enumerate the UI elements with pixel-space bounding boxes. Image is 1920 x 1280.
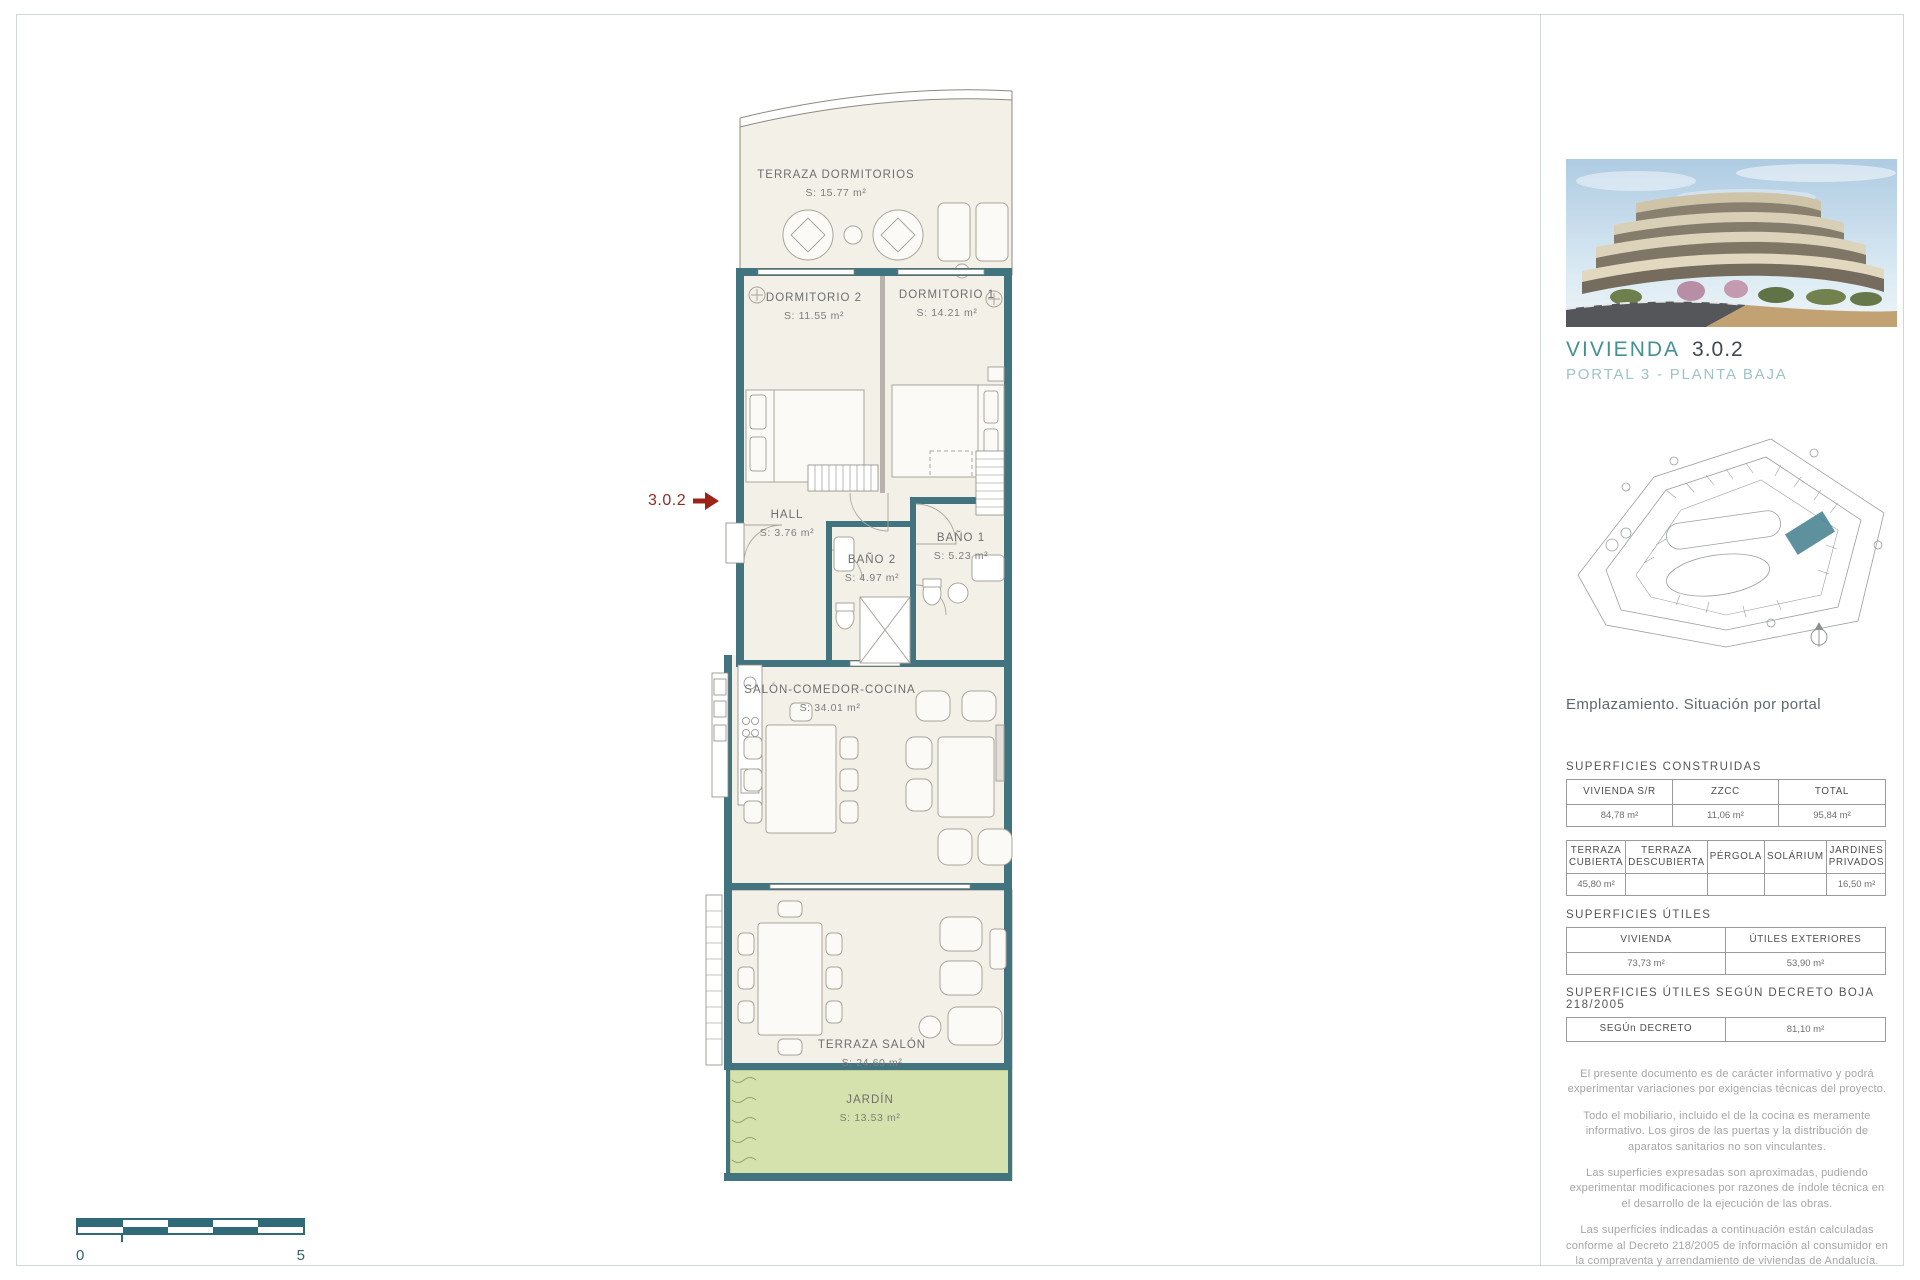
table-decreto: SEGÚn DECRETO 81,10 m² xyxy=(1566,1017,1886,1042)
pergola-strip xyxy=(706,895,722,1065)
col-value: 45,80 m² xyxy=(1567,874,1626,895)
floor-plan: TERRAZA DORMITORIOSS: 15.77 m² DORMITORI… xyxy=(700,85,1030,1195)
info-sidebar: VIVIENDA3.0.2 PORTAL 3 - PLANTA BAJA xyxy=(1540,14,1905,1266)
col-header: SOLÁRIUM xyxy=(1765,841,1827,874)
col-value: 84,78 m² xyxy=(1567,805,1673,826)
bedroom-partition-wall xyxy=(880,276,885,493)
room-label-hall: HALLS: 3.76 m² xyxy=(760,509,814,539)
col-header: VIVIENDA S/R xyxy=(1567,780,1673,805)
col-header: TERRAZA DESCUBIERTA xyxy=(1626,841,1707,874)
site-plan xyxy=(1566,425,1897,660)
legal-note: Todo el mobiliario, incluido el de la co… xyxy=(1566,1109,1888,1155)
room-label-salon: SALÓN-COMEDOR-COCINAS: 34.01 m² xyxy=(744,684,915,714)
col-header: SEGÚn DECRETO xyxy=(1567,1018,1726,1041)
heading-decreto: SUPERFICIES ÚTILES SEGÚN DECRETO BOJA 21… xyxy=(1566,987,1905,1011)
col-header: TERRAZA CUBIERTA xyxy=(1567,841,1626,874)
table-utiles: VIVIENDA ÚTILES EXTERIORES 73,73 m² 53,9… xyxy=(1566,927,1886,975)
room-label-jardin: JARDÍNS: 13.53 m² xyxy=(840,1094,901,1124)
room-label-banyo-2: BAÑO 2S: 4.97 m² xyxy=(845,554,899,584)
legal-note: Las superficies indicadas a continuación… xyxy=(1566,1223,1888,1269)
unit-title: VIVIENDA3.0.2 xyxy=(1566,338,1905,362)
col-value xyxy=(1765,874,1827,895)
col-value: 53,90 m² xyxy=(1726,953,1885,974)
col-value xyxy=(1626,874,1707,895)
legal-notes: El presente documento es de carácter inf… xyxy=(1566,1067,1888,1269)
unit-pointer-label: 3.0.2 xyxy=(648,492,686,510)
col-header: ÚTILES EXTERIORES xyxy=(1726,928,1885,953)
building-photo xyxy=(1566,159,1897,327)
col-header: JARDINES PRIVADOS xyxy=(1827,841,1887,874)
col-header: PÉRGOLA xyxy=(1708,841,1765,874)
heading-superficies-utiles: SUPERFICIES ÚTILES xyxy=(1566,909,1905,921)
col-value: 73,73 m² xyxy=(1567,953,1726,974)
col-header: ZZCC xyxy=(1673,780,1779,805)
scale-end-label: 5 xyxy=(297,1247,305,1264)
col-header: VIVIENDA xyxy=(1567,928,1726,953)
table-construidas-1: VIVIENDA S/R ZZCC TOTAL 84,78 m² 11,06 m… xyxy=(1566,779,1886,827)
unit-title-block: VIVIENDA3.0.2 PORTAL 3 - PLANTA BAJA xyxy=(1566,338,1905,383)
siteplan-caption: Emplazamiento. Situación por portal xyxy=(1566,696,1905,713)
legal-note: Las superficies expresadas son aproximad… xyxy=(1566,1166,1888,1212)
room-label-terraza-salon: TERRAZA SALÓNS: 24.60 m² xyxy=(818,1039,926,1069)
room-label-terraza-dormitorios: TERRAZA DORMITORIOSS: 15.77 m² xyxy=(757,169,914,199)
highlighted-unit xyxy=(1785,511,1835,555)
col-value: 16,50 m² xyxy=(1827,874,1887,895)
garden-floor xyxy=(730,1070,1012,1180)
scale-bar-graphic xyxy=(76,1218,305,1235)
scale-bar: 0 5 xyxy=(76,1218,305,1264)
col-value xyxy=(1708,874,1765,895)
wardrobe-striped xyxy=(808,465,878,491)
legal-note: El presente documento es de carácter inf… xyxy=(1566,1067,1888,1098)
building-photo-illustration xyxy=(1566,159,1897,327)
table-construidas-2: TERRAZA CUBIERTA TERRAZA DESCUBIERTA PÉR… xyxy=(1566,840,1886,896)
shower-banyo1 xyxy=(976,451,1004,515)
unit-pointer-arrow-icon xyxy=(693,492,719,510)
north-arrow-icon xyxy=(1811,623,1827,647)
heading-superficies-construidas: SUPERFICIES CONSTRUIDAS xyxy=(1566,761,1905,773)
col-value: 11,06 m² xyxy=(1673,805,1779,826)
room-label-dormitorio-1: DORMITORIO 1S: 14.21 m² xyxy=(899,289,995,319)
col-header: TOTAL xyxy=(1779,780,1885,805)
room-label-dormitorio-2: DORMITORIO 2S: 11.55 m² xyxy=(766,292,862,322)
col-value: 95,84 m² xyxy=(1779,805,1885,826)
scale-start-label: 0 xyxy=(76,1247,84,1264)
room-label-banyo-1: BAÑO 1S: 5.23 m² xyxy=(934,532,988,562)
unit-number: 3.0.2 xyxy=(1692,338,1744,361)
unit-pointer: 3.0.2 xyxy=(648,492,719,510)
floor-plan-drawing xyxy=(700,85,1030,1195)
site-plan-drawing xyxy=(1566,425,1897,660)
unit-subtitle: PORTAL 3 - PLANTA BAJA xyxy=(1566,366,1905,383)
col-value: 81,10 m² xyxy=(1726,1018,1885,1041)
